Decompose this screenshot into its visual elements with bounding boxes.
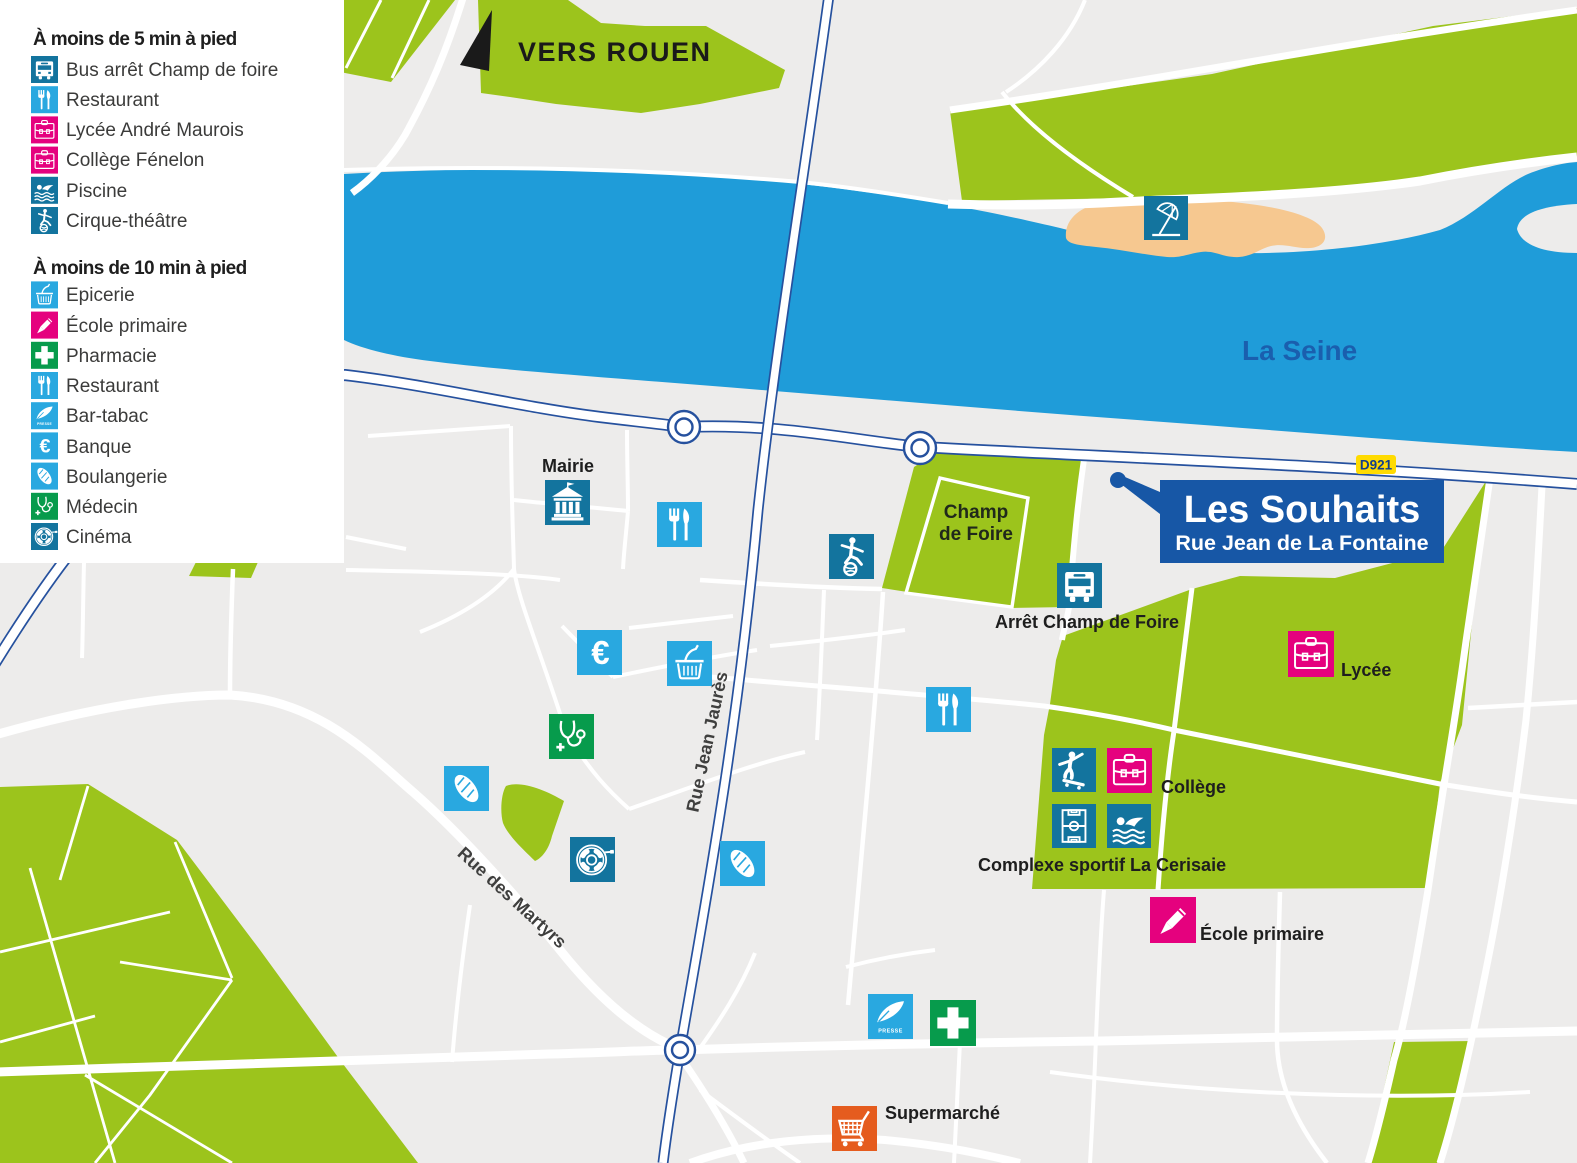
svg-text:Epicerie: Epicerie: [66, 285, 135, 306]
svg-text:Collège: Collège: [1161, 777, 1226, 797]
svg-text:Piscine: Piscine: [66, 181, 127, 202]
svg-text:À moins de 5 min à pied: À moins de 5 min à pied: [33, 28, 237, 50]
svg-text:Restaurant: Restaurant: [66, 376, 160, 397]
svg-text:La Seine: La Seine: [1242, 335, 1357, 366]
svg-text:Supermarché: Supermarché: [885, 1103, 1000, 1123]
svg-text:Cinéma: Cinéma: [66, 527, 132, 548]
svg-text:Champ: Champ: [944, 502, 1008, 523]
svg-text:Lycée: Lycée: [1341, 660, 1391, 680]
svg-text:Pharmacie: Pharmacie: [66, 346, 157, 367]
svg-text:École primaire: École primaire: [66, 316, 187, 337]
svg-text:Lycée André Maurois: Lycée André Maurois: [66, 120, 244, 141]
svg-text:Mairie: Mairie: [542, 456, 594, 476]
svg-text:Boulangerie: Boulangerie: [66, 467, 167, 488]
svg-text:Cirque-théâtre: Cirque-théâtre: [66, 211, 187, 232]
svg-text:Bus arrêt Champ de foire: Bus arrêt Champ de foire: [66, 60, 278, 81]
svg-text:de Foire: de Foire: [939, 524, 1013, 545]
svg-text:Collège Fénelon: Collège Fénelon: [66, 150, 204, 171]
svg-text:Bar-tabac: Bar-tabac: [66, 406, 148, 427]
svg-text:Restaurant: Restaurant: [66, 90, 160, 111]
svg-text:Rue Jean de La Fontaine: Rue Jean de La Fontaine: [1175, 531, 1428, 555]
svg-text:D921: D921: [1360, 458, 1393, 473]
svg-text:Complexe sportif La Cerisaie: Complexe sportif La Cerisaie: [978, 855, 1226, 875]
svg-text:École primaire: École primaire: [1200, 923, 1324, 944]
svg-text:Banque: Banque: [66, 437, 132, 458]
svg-text:À moins de 10 min à pied: À moins de 10 min à pied: [33, 257, 247, 279]
svg-text:Arrêt Champ de Foire: Arrêt Champ de Foire: [995, 612, 1179, 632]
svg-text:Médecin: Médecin: [66, 497, 138, 518]
svg-text:Les Souhaits: Les Souhaits: [1184, 489, 1421, 531]
svg-text:VERS ROUEN: VERS ROUEN: [518, 37, 712, 67]
